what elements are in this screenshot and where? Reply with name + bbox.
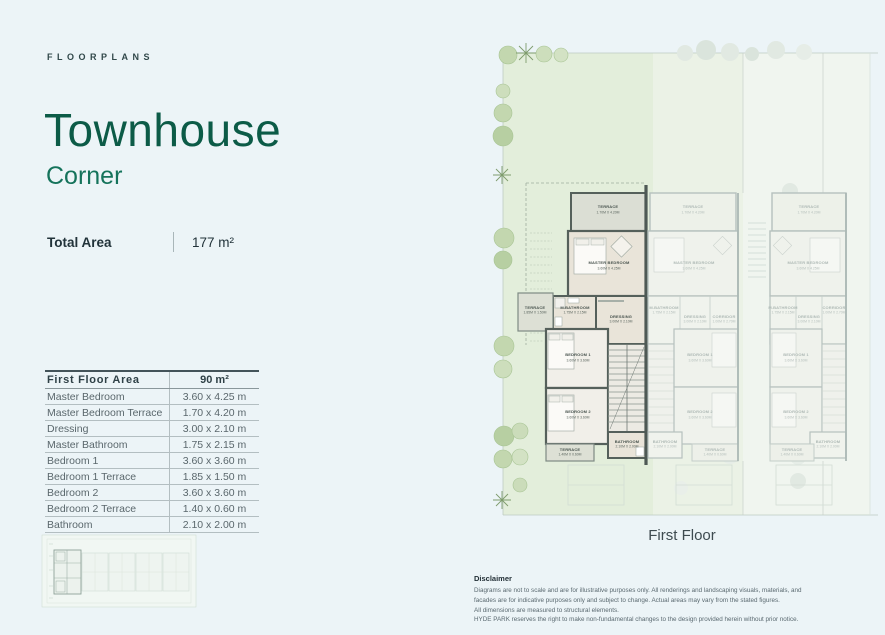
svg-text:BATHROOM: BATHROOM xyxy=(816,439,841,444)
room-name-cell: Dressing xyxy=(45,423,169,435)
svg-text:TERRACE: TERRACE xyxy=(799,204,820,209)
room-terrace-bottom: TERRACE 1.40M X 0.60M xyxy=(546,444,594,461)
room-dims-cell: 3.60 x 4.25 m xyxy=(169,389,259,404)
room-name-cell: Master Bedroom Terrace xyxy=(45,407,169,419)
svg-text:3.00M X 2.10M: 3.00M X 2.10M xyxy=(684,320,707,324)
floor-caption: First Floor xyxy=(562,527,802,544)
svg-text:TERRACE: TERRACE xyxy=(705,447,726,452)
svg-text:2.10M X 2.00M: 2.10M X 2.00M xyxy=(654,445,677,449)
site-floorplan: TERRACE 1.70M X 4.20M MASTER BEDROOM 3.6… xyxy=(478,33,885,525)
svg-text:MASTER BEDROOM: MASTER BEDROOM xyxy=(674,260,716,265)
table-header-value: 90 m² xyxy=(169,372,259,388)
svg-text:1.75M X 2.15M: 1.75M X 2.15M xyxy=(564,311,587,315)
svg-text:M.BATHROOM: M.BATHROOM xyxy=(768,305,798,310)
svg-text:1.40M X 0.60M: 1.40M X 0.60M xyxy=(559,453,582,457)
total-area-label: Total Area xyxy=(47,235,173,250)
svg-text:1.70M X 4.20M: 1.70M X 4.20M xyxy=(597,211,620,215)
room-name-cell: Bedroom 2 Terrace xyxy=(45,503,169,515)
svg-text:TERRACE: TERRACE xyxy=(525,305,546,310)
room-dims-cell: 1.70 x 4.20 m xyxy=(169,405,259,420)
svg-text:3.60M X 3.60M: 3.60M X 3.60M xyxy=(785,416,808,420)
svg-text:1.70M X 4.20M: 1.70M X 4.20M xyxy=(798,211,821,215)
disclaimer-title: Disclaimer xyxy=(474,574,870,583)
svg-text:TERRACE: TERRACE xyxy=(782,447,803,452)
svg-text:MASTER BEDROOM: MASTER BEDROOM xyxy=(788,260,830,265)
svg-text:DRESSING: DRESSING xyxy=(684,314,706,319)
svg-text:3.60M X 3.60M: 3.60M X 3.60M xyxy=(567,416,590,420)
svg-text:1.75M X 2.15M: 1.75M X 2.15M xyxy=(653,311,676,315)
room-dims-cell: 3.60 x 3.60 m xyxy=(169,485,259,500)
room-name-cell: Bedroom 1 xyxy=(45,455,169,467)
svg-text:DRESSING: DRESSING xyxy=(610,314,632,319)
svg-text:M.BATHROOM: M.BATHROOM xyxy=(560,305,590,310)
room-name-cell: Master Bedroom xyxy=(45,391,169,403)
room-dims-cell: 1.85 x 1.50 m xyxy=(169,469,259,484)
first-floor-area-table: First Floor Area 90 m² Master Bedroom 3.… xyxy=(45,370,259,533)
table-row: Bedroom 2 3.60 x 3.60 m xyxy=(45,485,259,501)
svg-text:2.10M X 2.00M: 2.10M X 2.00M xyxy=(817,445,840,449)
svg-text:3.60M X 3.60M: 3.60M X 3.60M xyxy=(785,359,808,363)
svg-text:BATHROOM: BATHROOM xyxy=(653,439,678,444)
unit-middle-faded: TERRACE 1.70M X 4.20M MASTER BEDROOM 3.6… xyxy=(648,193,738,461)
svg-text:3.00M X 2.10M: 3.00M X 2.10M xyxy=(798,320,821,324)
total-area-row: Total Area 177 m² xyxy=(47,230,234,254)
svg-text:BEDROOM 2: BEDROOM 2 xyxy=(783,409,809,414)
room-dims-cell: 3.00 x 2.10 m xyxy=(169,421,259,436)
table-row: Bedroom 1 3.60 x 3.60 m xyxy=(45,453,259,469)
room-name-cell: Master Bathroom xyxy=(45,439,169,451)
svg-text:CORRIDOR: CORRIDOR xyxy=(713,314,736,319)
room-dims-cell: 3.60 x 3.60 m xyxy=(169,453,259,468)
table-row: Bedroom 1 Terrace 1.85 x 1.50 m xyxy=(45,469,259,485)
svg-text:3.60M X 4.25M: 3.60M X 4.25M xyxy=(683,267,706,271)
room-dims-cell: 1.40 x 0.60 m xyxy=(169,501,259,516)
toilet-icon xyxy=(555,317,562,326)
room-bedroom-2: BEDROOM 2 3.60M X 3.60M xyxy=(546,388,608,444)
disclaimer-line: All dimensions are measured to structura… xyxy=(474,606,870,616)
room-terrace-top: TERRACE 1.70M X 4.20M xyxy=(571,193,646,231)
room-master-bedroom: MASTER BEDROOM 3.60M X 4.25M xyxy=(568,231,646,296)
room-name-cell: Bedroom 1 Terrace xyxy=(45,471,169,483)
svg-text:TERRACE: TERRACE xyxy=(560,447,581,452)
room-name-cell: Bathroom xyxy=(45,519,169,531)
svg-text:1.85M X 1.50M: 1.85M X 1.50M xyxy=(524,311,547,315)
svg-text:BATHROOM: BATHROOM xyxy=(615,439,640,444)
table-row: Master Bathroom 1.75 x 2.15 m xyxy=(45,437,259,453)
svg-text:MASTER BEDROOM: MASTER BEDROOM xyxy=(589,260,631,265)
svg-text:3.60M X 3.60M: 3.60M X 3.60M xyxy=(567,359,590,363)
svg-text:TERRACE: TERRACE xyxy=(683,204,704,209)
table-row: Bedroom 2 Terrace 1.40 x 0.60 m xyxy=(45,501,259,517)
svg-text:3.60M X 3.60M: 3.60M X 3.60M xyxy=(689,359,712,363)
floorplan-brochure-page: FLOORPLANS Townhouse Corner Total Area 1… xyxy=(0,0,885,635)
page-subtitle: Corner xyxy=(46,162,122,191)
eyebrow-label: FLOORPLANS xyxy=(47,52,154,62)
room-dims-cell: 1.75 x 2.15 m xyxy=(169,437,259,452)
svg-text:M.BATHROOM: M.BATHROOM xyxy=(649,305,679,310)
room-master-bathroom: M.BATHROOM 1.75M X 2.15M xyxy=(553,296,596,329)
svg-text:2.10M X 2.00M: 2.10M X 2.00M xyxy=(616,445,639,449)
room-bedroom-1: BEDROOM 1 3.60M X 3.60M xyxy=(546,329,608,388)
svg-text:BEDROOM 1: BEDROOM 1 xyxy=(565,352,591,357)
staircase xyxy=(608,344,646,432)
sink-icon xyxy=(568,298,579,303)
room-terrace-side: TERRACE 1.85M X 1.50M xyxy=(518,293,553,331)
disclaimer-line: HYDE PARK reserves the right to make non… xyxy=(474,615,870,625)
unit-right-faded: TERRACE 1.70M X 4.20M MASTER BEDROOM 3.6… xyxy=(768,193,846,461)
svg-text:1.40M X 0.60M: 1.40M X 0.60M xyxy=(704,453,727,457)
svg-text:BEDROOM 2: BEDROOM 2 xyxy=(687,409,713,414)
svg-text:1.00M X 2.70M: 1.00M X 2.70M xyxy=(713,320,736,324)
room-bathroom: BATHROOM 2.10M X 2.00M xyxy=(608,432,646,458)
svg-text:1.00M X 2.70M: 1.00M X 2.70M xyxy=(823,311,846,315)
svg-text:3.60M X 3.60M: 3.60M X 3.60M xyxy=(689,416,712,420)
floorplan-row-thumbnail xyxy=(40,530,200,612)
total-area-value: 177 m² xyxy=(174,235,234,250)
table-row: Master Bedroom Terrace 1.70 x 4.20 m xyxy=(45,405,259,421)
disclaimer-line: Diagrams are not to scale and are for il… xyxy=(474,586,870,596)
svg-text:3.60M X 4.25M: 3.60M X 4.25M xyxy=(797,267,820,271)
svg-text:1.40M X 0.60M: 1.40M X 0.60M xyxy=(781,453,804,457)
svg-text:BEDROOM 2: BEDROOM 2 xyxy=(565,409,591,414)
table-row: Master Bedroom 3.60 x 4.25 m xyxy=(45,389,259,405)
svg-text:DRESSING: DRESSING xyxy=(798,314,820,319)
svg-text:BEDROOM 1: BEDROOM 1 xyxy=(783,352,809,357)
svg-text:CORRIDOR: CORRIDOR xyxy=(823,305,846,310)
svg-text:3.00M X 2.10M: 3.00M X 2.10M xyxy=(610,320,633,324)
svg-text:TERRACE: TERRACE xyxy=(598,204,619,209)
svg-text:BEDROOM 1: BEDROOM 1 xyxy=(687,352,713,357)
svg-text:3.60M X 4.25M: 3.60M X 4.25M xyxy=(598,267,621,271)
table-header-row: First Floor Area 90 m² xyxy=(45,372,259,389)
table-header-label: First Floor Area xyxy=(45,374,169,386)
thumbnail-drawing xyxy=(40,530,200,612)
thumbnail-corner-unit xyxy=(54,550,81,594)
page-title: Townhouse xyxy=(44,103,281,157)
svg-text:1.75M X 2.15M: 1.75M X 2.15M xyxy=(772,311,795,315)
room-name-cell: Bedroom 2 xyxy=(45,487,169,499)
table-row: Dressing 3.00 x 2.10 m xyxy=(45,421,259,437)
disclaimer-block: Disclaimer Diagrams are not to scale and… xyxy=(474,574,870,625)
disclaimer-line: facades are for indicative purposes only… xyxy=(474,596,870,606)
svg-text:1.70M X 4.20M: 1.70M X 4.20M xyxy=(682,211,705,215)
floorplan-drawing: TERRACE 1.70M X 4.20M MASTER BEDROOM 3.6… xyxy=(478,33,885,525)
